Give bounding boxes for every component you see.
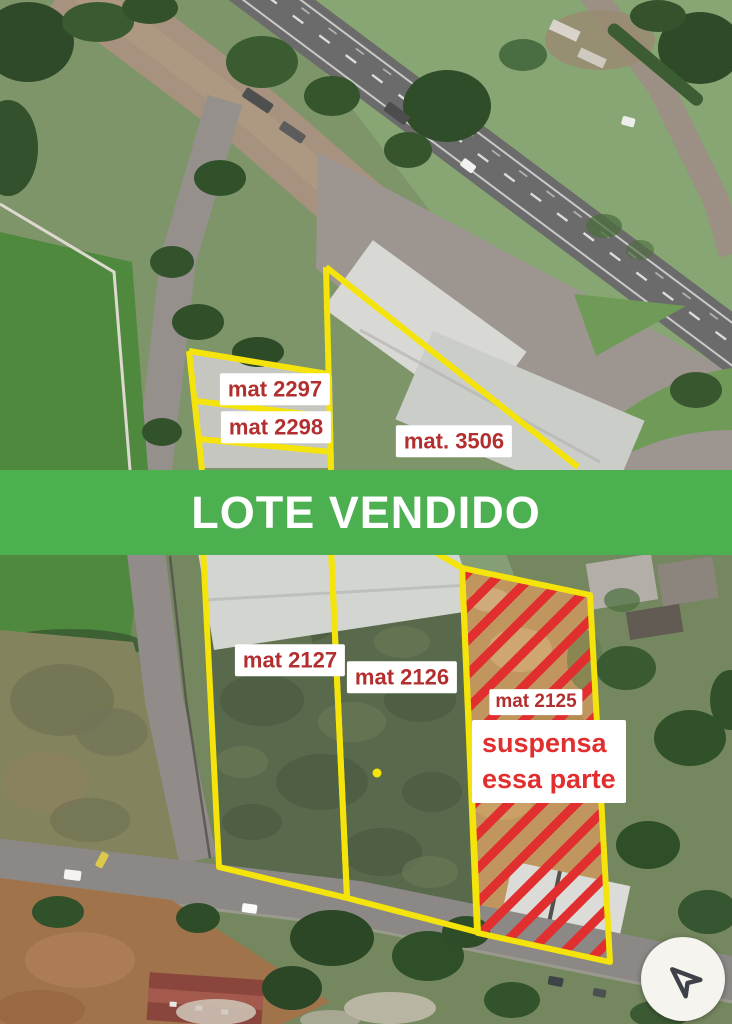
lot-label-2298: mat 2298	[221, 411, 331, 443]
lot-label-2125-text: mat 2125	[495, 691, 576, 712]
send-location-button[interactable]	[641, 937, 725, 1021]
lot-label-2127-text: mat 2127	[243, 647, 337, 672]
annotated-satellite-screenshot: mat 2297 mat 2298 mat. 3506 mat 2127 mat…	[0, 0, 732, 1024]
lot-label-2126-text: mat 2126	[355, 664, 449, 689]
navigation-send-icon	[660, 956, 706, 1002]
aerial-background-top	[0, 0, 732, 509]
lot-label-2125: mat 2125	[489, 689, 582, 715]
sold-banner: LOTE VENDIDO	[0, 470, 732, 555]
suspended-note: suspensa essa parte	[472, 720, 626, 803]
lot-label-2297: mat 2297	[220, 373, 330, 405]
lot-label-2126: mat 2126	[347, 661, 457, 693]
lot-label-3506-text: mat. 3506	[404, 428, 504, 453]
sold-banner-text: LOTE VENDIDO	[191, 487, 541, 539]
survey-marker-dot	[373, 769, 382, 778]
lot-label-2127: mat 2127	[235, 644, 345, 676]
lot-label-2297-text: mat 2297	[228, 376, 322, 401]
lot-label-2298-text: mat 2298	[229, 414, 323, 439]
lot-label-3506: mat. 3506	[396, 425, 512, 457]
suspended-note-line2: essa parte	[482, 761, 616, 797]
suspended-note-line1: suspensa	[482, 725, 616, 761]
